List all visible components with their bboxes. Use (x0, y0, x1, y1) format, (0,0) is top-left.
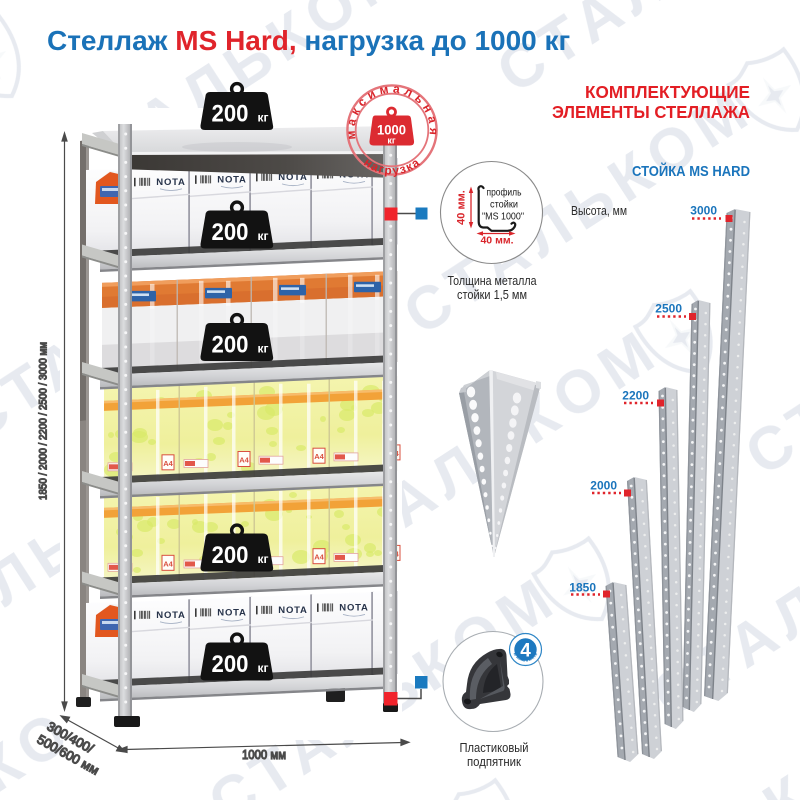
svg-text:1000 мм: 1000 мм (242, 747, 286, 762)
svg-text:A4: A4 (239, 455, 249, 464)
svg-text:подпятник: подпятник (467, 754, 521, 769)
svg-text:A4: A4 (314, 553, 324, 562)
svg-text:40 мм.: 40 мм. (480, 235, 513, 247)
svg-text:стойки 1,5 мм: стойки 1,5 мм (457, 288, 527, 302)
svg-text:40 мм.: 40 мм. (456, 190, 468, 225)
svg-text:200: 200 (212, 542, 249, 569)
svg-text:кг: кг (258, 229, 269, 243)
svg-text:1850 / 2000 / 2200 / 2500 / 30: 1850 / 2000 / 2200 / 2500 / 3000 мм (38, 342, 50, 500)
svg-text:кг: кг (258, 111, 269, 125)
svg-text:Высота, мм: Высота, мм (571, 204, 627, 218)
svg-text:кг: кг (258, 661, 269, 675)
svg-text:3000: 3000 (690, 204, 717, 218)
svg-text:кг: кг (258, 342, 269, 356)
svg-text:профиль: профиль (487, 187, 522, 199)
svg-text:стойки: стойки (490, 200, 518, 211)
svg-text:Пластиковый: Пластиковый (460, 740, 529, 755)
svg-text:ЭЛЕМЕНТЫ СТЕЛЛАЖА: ЭЛЕМЕНТЫ СТЕЛЛАЖА (552, 102, 750, 122)
svg-text:1850: 1850 (569, 581, 596, 595)
svg-text:200: 200 (212, 651, 249, 678)
svg-text:NOTA: NOTA (278, 605, 307, 616)
svg-text:A4: A4 (314, 452, 324, 461)
svg-text:A4: A4 (163, 559, 173, 568)
svg-text:кг: кг (258, 552, 269, 566)
svg-text:"MS 1000": "MS 1000" (482, 212, 524, 223)
svg-text:Стеллаж MS Hard, нагрузка до 1: Стеллаж MS Hard, нагрузка до 1000 кг (47, 25, 570, 56)
svg-text:200: 200 (212, 101, 249, 128)
svg-text:СТОЙКА MS HARD: СТОЙКА MS HARD (632, 162, 750, 180)
svg-text:NOTA: NOTA (156, 610, 185, 621)
svg-text:NOTA: NOTA (156, 177, 185, 188)
svg-text:A4: A4 (163, 459, 173, 468)
svg-text:Толщина металла: Толщина металла (448, 274, 537, 288)
svg-text:200: 200 (212, 219, 249, 246)
svg-text:NOTA: NOTA (217, 607, 246, 618)
svg-text:NOTA: NOTA (339, 602, 368, 613)
svg-text:2500: 2500 (655, 302, 682, 316)
svg-text:200: 200 (212, 332, 249, 359)
svg-text:КОМПЛЕКТУЮЩИЕ: КОМПЛЕКТУЮЩИЕ (585, 82, 750, 102)
svg-text:2000: 2000 (590, 479, 617, 493)
svg-text:2200: 2200 (622, 389, 649, 403)
svg-text:NOTA: NOTA (217, 174, 246, 185)
svg-text:кг: кг (387, 136, 396, 146)
